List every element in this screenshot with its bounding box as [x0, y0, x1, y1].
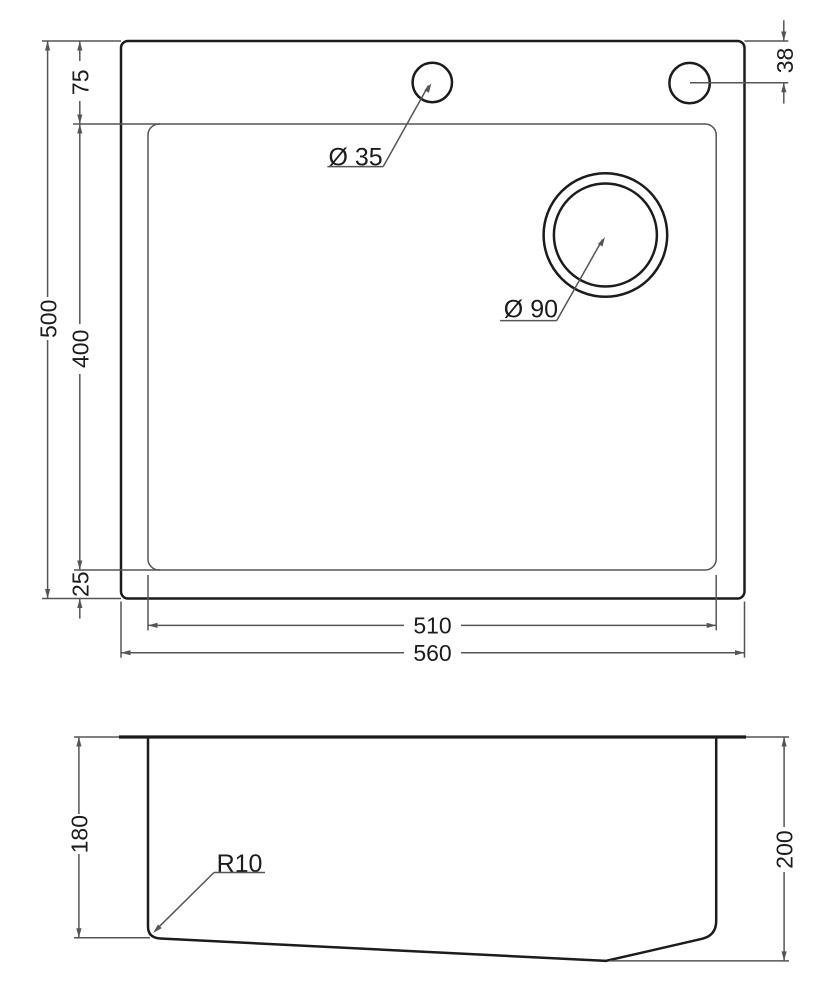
svg-text:400: 400 [67, 330, 93, 368]
svg-text:R10: R10 [217, 850, 263, 878]
svg-text:75: 75 [67, 70, 93, 96]
svg-text:500: 500 [35, 300, 61, 338]
svg-text:560: 560 [413, 640, 451, 666]
svg-text:200: 200 [772, 830, 798, 868]
svg-text:38: 38 [772, 48, 798, 74]
svg-text:510: 510 [413, 613, 451, 639]
svg-text:25: 25 [67, 571, 93, 597]
svg-text:Ø 90: Ø 90 [504, 295, 558, 323]
svg-text:180: 180 [67, 815, 93, 853]
